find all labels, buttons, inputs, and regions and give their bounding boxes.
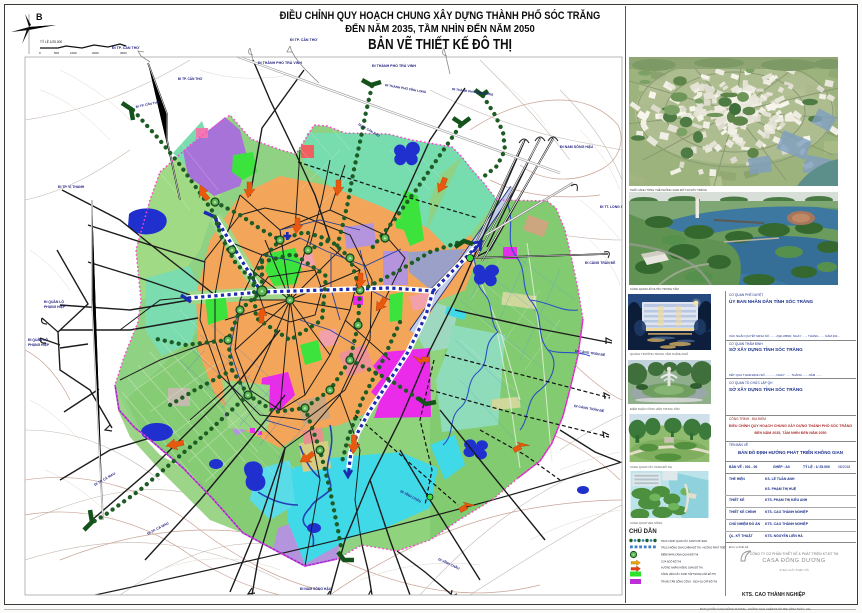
svg-text:TRỤC KHÔNG GIAN CHÍNH ĐÔ THỊ -: TRỤC KHÔNG GIAN CHÍNH ĐÔ THỊ - HƯỚNG PHÁ… [661, 547, 725, 550]
svg-text:CÔNG VIÊN CÂY XANH TẬP TRUNG C: CÔNG VIÊN CÂY XANH TẬP TRUNG CẤP ĐÔ THỊ [661, 573, 716, 576]
svg-text:✳: ✳ [348, 256, 352, 262]
svg-text:HƯỚNG NHẤN KHÔNG GIAN ĐÔ THỊ: HƯỚNG NHẤN KHÔNG GIAN ĐÔ THỊ [661, 567, 703, 570]
svg-text:✳: ✳ [348, 358, 352, 364]
svg-text:0: 0 [39, 51, 41, 55]
svg-text:ĐI TP. CẦN THƠ: ĐI TP. CẦN THƠ [212, 39, 240, 43]
svg-text:ĐI TP. VỊ THANH: ĐI TP. VỊ THANH [58, 185, 85, 189]
svg-text:CỬA NGÕ ĐÔ THỊ: CỬA NGÕ ĐÔ THỊ [661, 561, 681, 564]
svg-text:✳: ✳ [230, 248, 234, 254]
svg-text:✳: ✳ [356, 323, 360, 329]
svg-text:TRỤC CẢNH QUAN CÂY XANH CHỦ ĐẠ: TRỤC CẢNH QUAN CÂY XANH CHỦ ĐẠO [661, 540, 707, 543]
svg-text:✳: ✳ [246, 393, 250, 399]
svg-text:2000: 2000 [92, 51, 99, 55]
svg-text:3000: 3000 [120, 51, 127, 55]
svg-text:ĐI NAM SÔNG HẬU: ĐI NAM SÔNG HẬU [560, 144, 594, 149]
svg-text:✳: ✳ [238, 308, 242, 314]
svg-text:✳: ✳ [226, 338, 230, 344]
svg-text:ĐI THÀNH PHỐ TRÀ VINH: ĐI THÀNH PHỐ TRÀ VINH [372, 63, 416, 68]
svg-text:500: 500 [54, 51, 59, 55]
svg-text:PHỤNG HIỆP: PHỤNG HIỆP [44, 304, 66, 309]
svg-text:ĐI QUẢN LỘ: ĐI QUẢN LỘ [28, 337, 48, 342]
svg-text:✳: ✳ [383, 236, 387, 242]
svg-text:ĐIỂM NHẤN CẢNH QUAN ĐÔ THỊ: ĐIỂM NHẤN CẢNH QUAN ĐÔ THỊ [661, 554, 698, 557]
svg-text:✳: ✳ [318, 448, 322, 454]
svg-text:✳: ✳ [306, 248, 310, 254]
svg-text:✳: ✳ [278, 238, 282, 244]
svg-text:ĐI QUẢN LỘ: ĐI QUẢN LỘ [44, 299, 64, 304]
svg-text:TỶ LỆ 1/25.000: TỶ LỆ 1/25.000 [40, 39, 62, 44]
svg-text:✳: ✳ [260, 289, 264, 295]
svg-text:✳: ✳ [303, 406, 307, 412]
svg-text:✳: ✳ [213, 200, 217, 206]
svg-text:1000: 1000 [70, 51, 77, 55]
svg-text:PHỤNG HIỆP: PHỤNG HIỆP [28, 342, 50, 347]
svg-text:ĐI CẢNG TRẦN ĐỀ: ĐI CẢNG TRẦN ĐỀ [585, 260, 616, 265]
svg-text:✳: ✳ [328, 388, 332, 394]
svg-text:ĐI THÀNH PHỐ TRÀ VINH: ĐI THÀNH PHỐ TRÀ VINH [258, 60, 302, 65]
svg-text:TRUNG TÂM CÔNG CỘNG - DỊCH VỤ: TRUNG TÂM CÔNG CỘNG - DỊCH VỤ CẤP ĐÔ THỊ [661, 581, 717, 584]
svg-text:ĐI NAM SÔNG HẬU: ĐI NAM SÔNG HẬU [300, 586, 332, 591]
svg-text:✳: ✳ [288, 298, 292, 304]
svg-text:ĐI TP. CẦN THƠ: ĐI TP. CẦN THƠ [178, 77, 203, 81]
svg-text:✳: ✳ [358, 288, 362, 294]
svg-text:B: B [36, 12, 43, 22]
